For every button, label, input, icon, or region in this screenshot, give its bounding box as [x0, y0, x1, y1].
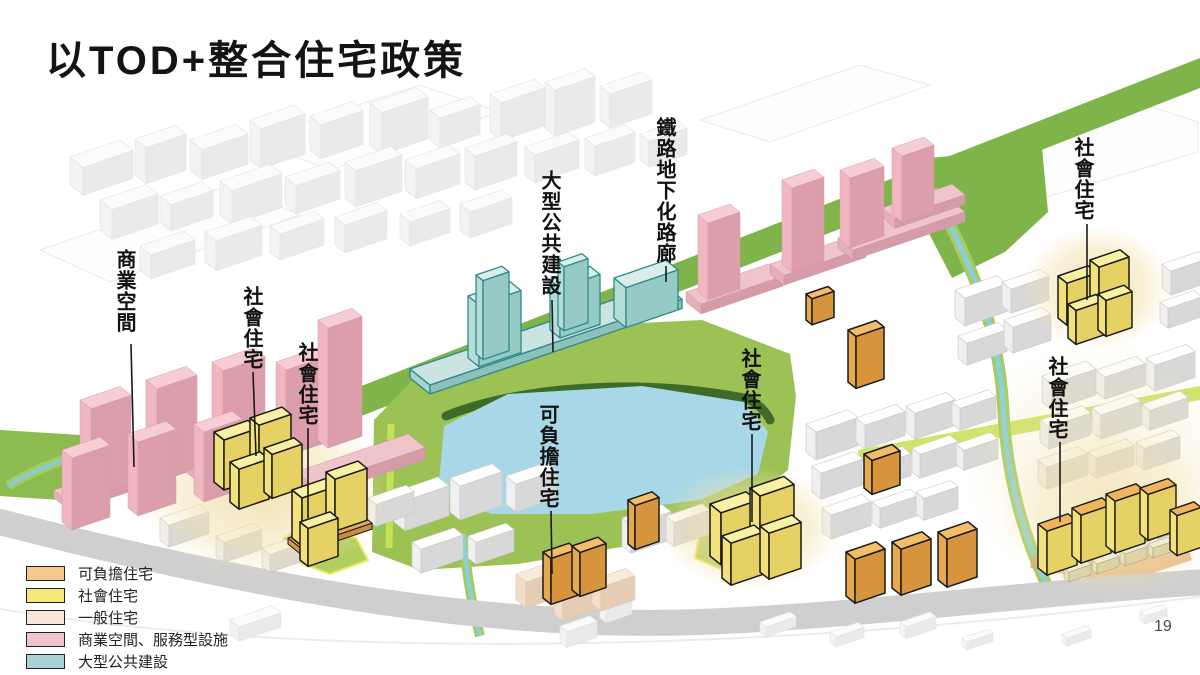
legend-item: 商業空間、服務型設施 — [26, 631, 228, 647]
legend-item-label: 商業空間、服務型設施 — [78, 629, 228, 650]
page-number: 19 — [1154, 618, 1172, 636]
page-title: 以TOD+整合住宅政策 — [46, 28, 466, 86]
map-label-social-housing-4: 社會住宅 — [1072, 137, 1092, 221]
map-label-commercial-space: 商業空間 — [114, 249, 134, 333]
map-label-public-construction: 大型公共建設 — [539, 170, 559, 296]
legend-item: 一般住宅 — [26, 609, 228, 625]
leader-line — [552, 300, 553, 352]
map-label-social-housing-5: 社會住宅 — [1046, 356, 1066, 440]
map-label-social-housing-2: 社會住宅 — [296, 342, 316, 426]
legend-item: 可負擔住宅 — [26, 565, 228, 581]
legend-item-label: 可負擔住宅 — [78, 563, 153, 584]
legend-swatch-general — [26, 610, 65, 625]
legend-swatch-commercial — [26, 632, 65, 647]
legend-item: 社會住宅 — [26, 587, 228, 603]
legend-item-label: 社會住宅 — [78, 585, 138, 606]
map-label-affordable-housing: 可負擔住宅 — [537, 404, 557, 509]
legend-swatch-public — [26, 654, 65, 669]
map-label-railway-corridor: 鐵路地下化路廊 — [654, 117, 674, 264]
legend-item: 大型公共建設 — [26, 653, 228, 669]
slide: 以TOD+整合住宅政策 商業空間 社會住宅 社會住宅 大型公共建設 鐵路地下化路… — [0, 0, 1200, 675]
legend-swatch-social — [26, 588, 65, 603]
map-label-social-housing-3: 社會住宅 — [739, 348, 759, 432]
legend-swatch-affordable — [26, 566, 65, 581]
legend-item-label: 大型公共建設 — [78, 651, 168, 672]
legend-item-label: 一般住宅 — [78, 607, 138, 628]
map-label-social-housing-1: 社會住宅 — [241, 286, 261, 370]
leader-line — [551, 511, 552, 574]
legend: 可負擔住宅 社會住宅 一般住宅 商業空間、服務型設施 大型公共建設 — [26, 565, 228, 675]
ghost-city-buildings — [70, 68, 687, 278]
